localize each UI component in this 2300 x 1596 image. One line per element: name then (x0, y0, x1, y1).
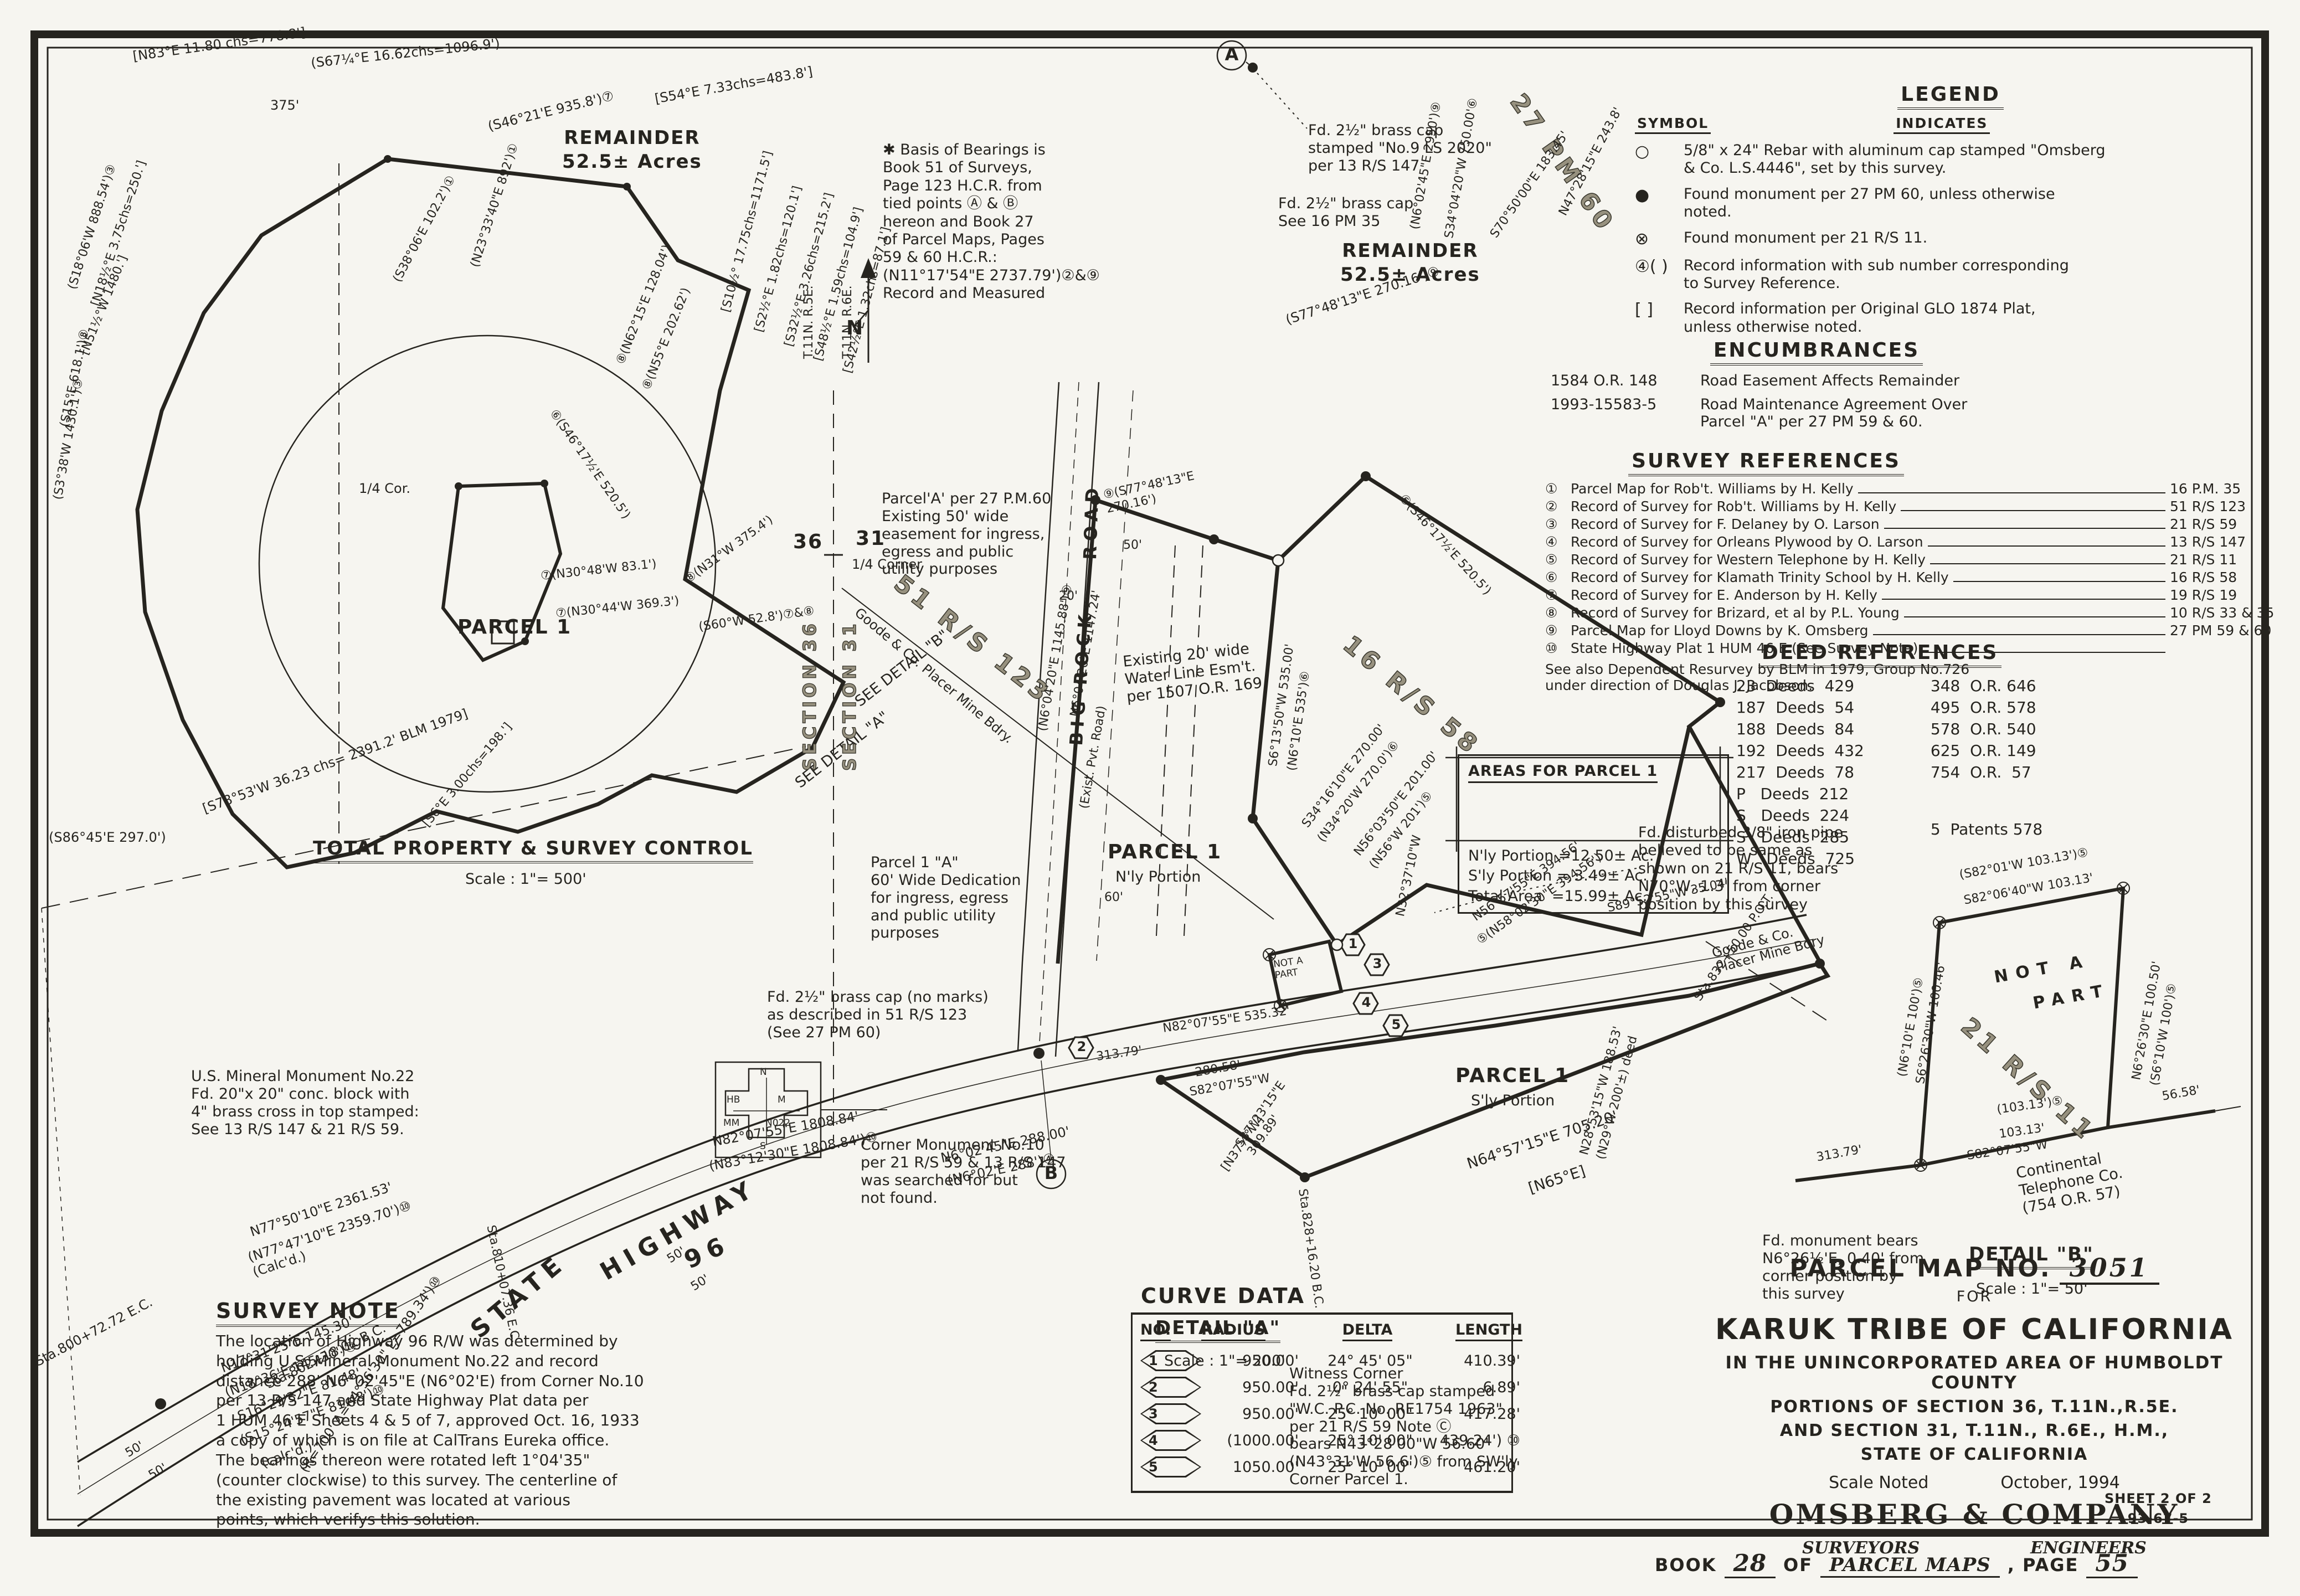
location-line1: IN THE UNINCORPORATED AREA OF HUMBOLDT C… (1684, 1353, 2265, 1393)
map-annotation: 3 (1371, 956, 1383, 971)
page-label: , PAGE (2008, 1554, 2079, 1576)
legend-item-text: Found monument per 21 R/S 11. (1684, 229, 1927, 249)
page-number: 55 (2086, 1549, 2137, 1578)
survey-reference-text: Record of Survey for F. Delaney by O. La… (1571, 516, 1884, 532)
map-annotation: Parcel'A' per 27 P.M.60 Existing 50' wid… (882, 490, 1051, 578)
legend-item-text: Record information per Original GLO 1874… (1684, 300, 2036, 336)
legend-item: ④( ) Record information with sub number … (1635, 257, 2266, 293)
map-annotation: TOTAL PROPERTY & SURVEY CONTROL (313, 837, 753, 863)
survey-reference-leader (1873, 634, 2165, 635)
map-annotation: Scale : 1"= 200' (1164, 1352, 1285, 1370)
curve-number-badge: 4 (1140, 1430, 1201, 1451)
survey-reference-text: Parcel Map for Lloyd Downs by K. Omsberg (1571, 622, 1873, 639)
survey-reference-book: 21 R/S 11 (2170, 552, 2264, 568)
map-annotation: 5 (1390, 1017, 1402, 1032)
legend-symbol-icon: ④( ) (1635, 257, 1684, 293)
map-annotation: DETAIL "B" (1969, 1243, 2094, 1269)
curve-data-title: CURVE DATA (1141, 1284, 1513, 1308)
encumbrance-items: 1584 O.R. 148 Road Easement Affects Rema… (1551, 372, 2237, 430)
deed-reference: P Deeds 212 (1736, 785, 1864, 803)
map-annotation: Fd. 2½" brass cap (no marks) as describe… (767, 989, 989, 1042)
map-annotation: DETAIL "A" (1155, 1317, 1280, 1343)
legend-item: ⊗ Found monument per 21 R/S 11. (1635, 229, 2266, 249)
deed-reference: 495 O.R. 578 (1931, 698, 2042, 717)
survey-reference-item: ① Parcel Map for Rob't. Williams by H. K… (1545, 481, 2264, 497)
survey-reference-leader (1928, 545, 2165, 547)
deed-reference: 348 O.R. 646 (1931, 677, 2042, 695)
map-annotation: T.11N. R.5E. (802, 285, 816, 359)
map-annotation: Parcel 1 "A" 60' Wide Dedication for ing… (871, 854, 1021, 942)
map-annotation: M (778, 1094, 786, 1105)
legend-symbol-icon: ○ (1635, 142, 1684, 178)
survey-reference-book: 10 R/S 33 & 35 (2170, 605, 2264, 621)
survey-reference-item: ⑦ Record of Survey for E. Anderson by H.… (1545, 587, 2264, 604)
encumbrance-text: Road Easement Affects Remainder (1700, 372, 2237, 389)
survey-reference-leader (1953, 580, 2165, 582)
encumbrance-ref: 1584 O.R. 148 (1551, 372, 1700, 389)
legend-items: ○ 5/8" x 24" Rebar with aluminum cap sta… (1635, 142, 2266, 336)
map-annotation: HB (727, 1094, 740, 1105)
map-annotation: Scale : 1"= 500' (465, 871, 586, 888)
survey-references-title: SURVEY REFERENCES (1628, 450, 1904, 476)
deed-reference: 192 Deeds 432 (1736, 742, 1864, 760)
encumbrance-ref: 1993-15583-5 (1551, 396, 1700, 430)
deed-reference: 187 Deeds 54 (1736, 698, 1864, 717)
map-annotation: REMAINDER 52.5± Acres (562, 126, 702, 173)
survey-reference-book: 21 R/S 59 (2170, 516, 2264, 532)
survey-reference-text: Parcel Map for Rob't. Williams by H. Kel… (1571, 481, 1858, 497)
deed-reference: 754 O.R. 57 (1931, 763, 2042, 781)
areas-title: AREAS FOR PARCEL 1 (1468, 761, 1658, 783)
map-annotation: N (846, 317, 864, 340)
map-annotation: ROAD (1080, 483, 1104, 560)
survey-reference-number: ⑤ (1545, 552, 1571, 568)
deed-reference: S Deeds 224 (1736, 806, 1864, 825)
map-annotation: (S86°45'E 297.0') (49, 830, 166, 845)
map-annotation: A (1223, 44, 1240, 65)
encumbrances-panel: ENCUMBRANCES 1584 O.R. 148 Road Easement… (1551, 339, 2237, 437)
survey-reference-book: 16 R/S 58 (2170, 569, 2264, 585)
curve-col-length: LENGTH (1455, 1321, 1522, 1341)
survey-reference-number: ② (1545, 498, 1571, 514)
deed-reference: 188 Deeds 84 (1736, 720, 1864, 738)
parcel-map-sheet: LEGEND SYMBOL INDICATES ○ 5/8" x 24" Reb… (0, 0, 2300, 1596)
deed-reference: 625 O.R. 149 (1931, 742, 2042, 760)
map-annotation: Scale : 1"= 50' (1976, 1280, 2088, 1298)
survey-reference-number: ⑧ (1545, 605, 1571, 621)
survey-reference-item: ⑥ Record of Survey for Klamath Trinity S… (1545, 569, 2264, 586)
map-annotation: PARCEL 1 (1455, 1064, 1570, 1088)
of-label: OF (1783, 1554, 1813, 1576)
map-annotation: N022 (765, 1118, 790, 1129)
deed-reference: 217 Deeds 78 (1736, 763, 1864, 781)
legend-symbol-icon: ● (1635, 186, 1684, 222)
survey-reference-leader (1882, 598, 2165, 600)
map-annotation: SECTION 31 (840, 620, 861, 771)
survey-reference-number: ⑥ (1545, 569, 1571, 585)
survey-reference-number: ③ (1545, 516, 1571, 532)
survey-reference-number: ① (1545, 481, 1571, 497)
survey-reference-book: 16 P.M. 35 (2170, 481, 2264, 497)
legend-item-text: Record information with sub number corre… (1684, 257, 2069, 293)
location-line2: PORTIONS OF SECTION 36, T.11N.,R.5E. (1684, 1397, 2265, 1417)
survey-reference-item: ④ Record of Survey for Orleans Plywood b… (1545, 534, 2264, 550)
legend-col-indicates: INDICATES (1893, 115, 1990, 134)
survey-reference-text: Record of Survey for Orleans Plywood by … (1571, 534, 1928, 550)
survey-reference-items: ① Parcel Map for Rob't. Williams by H. K… (1545, 481, 2264, 657)
survey-reference-item: ⑤ Record of Survey for Western Telephone… (1545, 552, 2264, 568)
legend-panel: LEGEND SYMBOL INDICATES ○ 5/8" x 24" Reb… (1635, 83, 2266, 344)
survey-reference-book: 27 PM 59 & 60 (2170, 622, 2264, 639)
deed-references-title: DEED REFERENCES (1758, 641, 2001, 668)
survey-reference-leader (1930, 563, 2165, 564)
survey-note-title: SURVEY NOTE (216, 1299, 400, 1327)
map-annotation: MM (723, 1118, 739, 1129)
map-annotation: 50' (1123, 538, 1142, 553)
survey-reference-number: ⑨ (1545, 622, 1571, 639)
survey-reference-leader (1904, 616, 2165, 617)
survey-reference-book: 51 R/S 123 (2170, 498, 2264, 514)
curve-number-badge: 3 (1140, 1403, 1201, 1424)
legend-item-text: Found monument per 27 PM 60, unless othe… (1684, 186, 2055, 222)
survey-reference-book: 13 R/S 147 (2170, 534, 2264, 550)
legend-item-text: 5/8" x 24" Rebar with aluminum cap stamp… (1684, 142, 2105, 178)
survey-reference-text: Record of Survey for Klamath Trinity Sch… (1571, 569, 1953, 585)
survey-reference-item: ② Record of Survey for Rob't. Williams b… (1545, 498, 2264, 515)
legend-title: LEGEND (1897, 83, 2004, 110)
map-annotation: 375' (270, 97, 299, 113)
map-annotation: NOT A PART (1273, 955, 1305, 981)
map-annotation: 2 (1076, 1039, 1088, 1054)
survey-reference-item: ⑨ Parcel Map for Lloyd Downs by K. Omsbe… (1545, 622, 2264, 639)
job-number: 93-67-5 (2105, 1509, 2212, 1528)
survey-reference-number: ④ (1545, 534, 1571, 550)
map-date: October, 1994 (2000, 1473, 2119, 1492)
legend-item: ○ 5/8" x 24" Rebar with aluminum cap sta… (1635, 142, 2266, 178)
map-annotation: 60' (1104, 890, 1123, 905)
survey-reference-leader (1884, 527, 2165, 529)
legend-item: ● Found monument per 27 PM 60, unless ot… (1635, 186, 2266, 222)
deed-reference: 578 O.R. 540 (1931, 720, 2042, 738)
survey-reference-leader (1901, 509, 2165, 511)
map-annotation: PARCEL 1 (1108, 841, 1222, 864)
scale-noted: Scale Noted (1829, 1473, 1928, 1492)
curve-col-delta: DELTA (1342, 1321, 1393, 1341)
map-annotation: 36 (793, 531, 823, 554)
survey-reference-text: Record of Survey for E. Anderson by H. K… (1571, 587, 1882, 603)
survey-reference-item: ③ Record of Survey for F. Delaney by O. … (1545, 516, 2264, 533)
map-annotation: Fd. monument bears N6°26½'E, 0.40' from … (1762, 1232, 1924, 1302)
client-name: KARUK TRIBE OF CALIFORNIA (1684, 1313, 2265, 1346)
survey-reference-number: ⑦ (1545, 587, 1571, 603)
deed-reference: 23 Deeds 429 (1736, 677, 1864, 695)
deed-list-2: 348 O.R. 646495 O.R. 578578 O.R. 540625 … (1931, 677, 2042, 781)
map-annotation: N (760, 1067, 767, 1078)
map-annotation: S (760, 1141, 766, 1152)
survey-reference-book: 19 R/S 19 (2170, 587, 2264, 603)
encumbrance-item: 1993-15583-5 Road Maintenance Agreement … (1551, 396, 2237, 430)
curve-number-badge: 5 (1140, 1456, 1201, 1477)
encumbrance-text: Road Maintenance Agreement Over Parcel "… (1700, 396, 2237, 430)
location-line3: AND SECTION 31, T.11N., R.6E., H.M., (1684, 1421, 2265, 1440)
map-annotation: U.S. Mineral Monument No.22 Fd. 20"x 20"… (191, 1068, 419, 1138)
location-line4: STATE OF CALIFORNIA (1684, 1445, 2265, 1464)
map-annotation: Fd. 2½" brass cap See 16 PM 35 (1278, 195, 1413, 230)
map-annotation: 4 (1360, 995, 1372, 1010)
legend-symbol-icon: ⊗ (1635, 229, 1684, 249)
survey-reference-leader (1858, 492, 2165, 493)
encumbrances-title: ENCUMBRANCES (1710, 339, 1923, 365)
survey-reference-text: Record of Survey for Rob't. Williams by … (1571, 498, 1901, 514)
survey-reference-number: ⑩ (1545, 640, 1571, 656)
map-annotation: B (1043, 1163, 1059, 1184)
legend-col-symbol: SYMBOL (1635, 115, 1711, 134)
map-annotation: Witness Corner Fd. 2½" brass cap stamped… (1289, 1365, 1518, 1489)
curve-number-badge: 2 (1140, 1377, 1201, 1398)
survey-reference-text: Record of Survey for Brizard, et al by P… (1571, 605, 1904, 621)
patents-reference: 5 Patents 578 (1931, 820, 2042, 838)
map-annotation: PARCEL 1 (457, 616, 572, 639)
map-annotation: S'ly Portion (1471, 1092, 1555, 1110)
map-annotation: N'ly Portion (1115, 868, 1201, 886)
series-name: PARCEL MAPS (1820, 1554, 2000, 1578)
map-annotation: 1 (1347, 936, 1359, 951)
book-label: BOOK (1655, 1554, 1717, 1576)
survey-reference-text: Record of Survey for Western Telephone b… (1571, 552, 1930, 568)
map-annotation: 1/4 Cor. (359, 481, 410, 496)
encumbrance-item: 1584 O.R. 148 Road Easement Affects Rema… (1551, 372, 2237, 389)
legend-symbol-icon: [ ] (1635, 300, 1684, 336)
sheet-number: SHEET 2 OF 2 93-67-5 (2105, 1489, 2212, 1528)
legend-item: [ ] Record information per Original GLO … (1635, 300, 2266, 336)
map-annotation: 31 (856, 527, 886, 550)
map-annotation: SECTION 36 (800, 620, 821, 771)
survey-reference-item: ⑧ Record of Survey for Brizard, et al by… (1545, 605, 2264, 621)
book-number: 28 (1725, 1549, 1776, 1578)
basis-of-bearings-note: ✱ Basis of Bearings is Book 51 of Survey… (883, 141, 1160, 303)
footer-record-line: BOOK 28 OF PARCEL MAPS , PAGE 55 (1655, 1549, 2138, 1578)
